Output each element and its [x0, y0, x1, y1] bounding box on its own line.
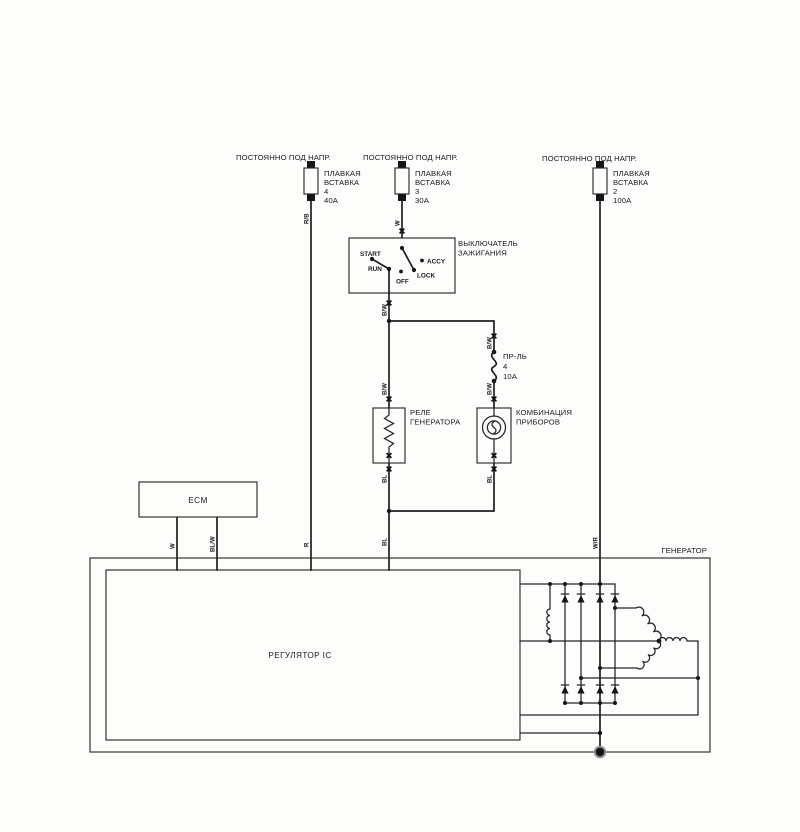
ignition-switch: ВЫКЛЮЧАТЕЛЬ ЗАЖИГАНИЯ START RUN OFF ACCY… [349, 238, 518, 293]
junction-dot [563, 582, 567, 586]
junction-dot [598, 666, 602, 670]
wire-label-w: W [395, 220, 401, 226]
ecm-module: ECM [139, 482, 257, 517]
generator-relay: РЕЛЕ ГЕНЕРАТОРА [373, 408, 461, 463]
wire-label-rb: R/B [305, 213, 311, 224]
diode-icon [577, 595, 584, 603]
diode-icon [596, 686, 603, 694]
fuse-body-icon [593, 168, 607, 194]
switch-pos-off: OFF [396, 279, 409, 286]
wire-label-bw: B/W [487, 337, 493, 349]
stator-phase-a-icon [615, 607, 661, 640]
wire-label-bl: BL [487, 475, 493, 483]
contact-dot-run [387, 267, 391, 271]
fuse-body-icon [395, 168, 409, 194]
fuse-rating: 40А [324, 196, 339, 205]
junction-dot [579, 676, 583, 680]
generator-box [90, 558, 710, 752]
fuse-rating: 30А [415, 196, 430, 205]
junction-dot [613, 701, 617, 705]
power-label-2: ПОСТОЯННО ПОД НАПР. [363, 153, 458, 162]
diode-icon [596, 595, 603, 603]
junction-dot [579, 701, 583, 705]
generator-label: ГЕНЕРАТОР [661, 546, 707, 555]
switch-pos-run: RUN [368, 266, 382, 273]
fuse-body-icon [304, 168, 318, 194]
contact-dot [400, 246, 404, 250]
fuse-cap-icon [596, 194, 604, 201]
diode-icon [611, 686, 618, 694]
fuse-number: 3 [415, 187, 419, 196]
wire-label-bl: BL [382, 475, 388, 483]
wire-label-r: R [305, 542, 311, 547]
inline-fuse-name: ПР-ЛЬ [503, 352, 527, 361]
wire-label-bw: B/W [487, 383, 493, 395]
cluster-label: ПРИБОРОВ [516, 418, 560, 427]
fuse-number: 2 [613, 187, 617, 196]
switch-pos-accy: ACCY [427, 259, 446, 266]
power-supply-labels: ПОСТОЯННО ПОД НАПР. ПОСТОЯННО ПОД НАПР. … [236, 153, 637, 163]
charging-system-schematic: ПОСТОЯННО ПОД НАПР. ПОСТОЯННО ПОД НАПР. … [0, 0, 800, 832]
stator-phase-c-icon [600, 641, 661, 669]
power-label-3: ПОСТОЯННО ПОД НАПР. [542, 154, 637, 163]
diode-icon [561, 686, 568, 694]
fuse-rating: 100А [613, 196, 632, 205]
wire-label-wr: W/R [593, 536, 599, 549]
diode-icon [561, 595, 568, 603]
generator-assembly: ГЕНЕРАТОР РЕГУЛЯТОР IC [90, 546, 710, 758]
inline-fuse: ПР-ЛЬ 4 10А [492, 350, 527, 384]
junction-dot [598, 701, 602, 705]
relay-label: РЕЛЕ [410, 408, 431, 417]
wire-label-bw: B/W [382, 383, 388, 395]
wiring-diagram-page: ПОСТОЯННО ПОД НАПР. ПОСТОЯННО ПОД НАПР. … [0, 0, 800, 832]
wire-label-bw: B/W [382, 304, 388, 316]
wire-bl-lamp [389, 463, 494, 511]
inline-fuse-number: 4 [503, 362, 508, 371]
wire-label-blw: BL/W [210, 536, 216, 552]
ignition-switch-label: ВЫКЛЮЧАТЕЛЬ [458, 239, 518, 248]
junction-dot [387, 319, 391, 323]
junction-dot [598, 731, 602, 735]
power-label-1: ПОСТОЯННО ПОД НАПР. [236, 153, 331, 162]
fuse-cap-icon [307, 194, 315, 201]
fuse-name: ВСТАВКА [613, 178, 649, 187]
wire-label-w: W [170, 543, 176, 549]
cluster-label: КОМБИНАЦИЯ [516, 408, 572, 417]
fuse-name: ВСТАВКА [324, 178, 360, 187]
ground-dot [596, 748, 604, 756]
diode-icons-top [561, 594, 618, 603]
fuse-cap-icon [307, 161, 315, 168]
diode-icon [611, 595, 618, 603]
diode-icons-bottom [561, 685, 618, 694]
switch-pos-start: START [360, 251, 381, 258]
ecm-label: ECM [188, 496, 207, 505]
fusible-link-40a: ПЛАВКАЯ ВСТАВКА 4 40А [304, 161, 361, 205]
fuse-name: ПЛАВКАЯ [324, 169, 361, 178]
junction-dot [387, 509, 391, 513]
fuse-name: ПЛАВКАЯ [415, 169, 452, 178]
fuse-name: ПЛАВКАЯ [613, 169, 650, 178]
fuse-name: ВСТАВКА [415, 178, 451, 187]
ignition-switch-label: ЗАЖИГАНИЯ [458, 249, 507, 258]
regulator-label: РЕГУЛЯТОР IC [268, 651, 331, 660]
fuse-cap-icon [398, 161, 406, 168]
fuse-element-icon [492, 352, 497, 381]
relay-label: ГЕНЕРАТОРА [410, 418, 461, 427]
junction-dot [579, 582, 583, 586]
fuse-number: 4 [324, 187, 329, 196]
fusible-link-100a: ПЛАВКАЯ ВСТАВКА 2 100А [593, 161, 650, 205]
inline-fuse-rating: 10А [503, 372, 518, 381]
contact-dot-lock [412, 268, 416, 272]
contact-dot-accy [420, 259, 424, 263]
fusible-link-30a: ПЛАВКАЯ ВСТАВКА 3 30А [395, 161, 452, 205]
switch-pos-lock: LOCK [417, 273, 435, 280]
field-winding-icon [547, 584, 550, 641]
contact-dot-off [399, 270, 403, 274]
junction-dot [696, 676, 700, 680]
instrument-cluster: КОМБИНАЦИЯ ПРИБОРОВ [477, 408, 572, 463]
wire-bw-branch [389, 321, 494, 352]
fuse-cap-icon [596, 161, 604, 168]
diode-icon [577, 686, 584, 694]
junction-dot [598, 582, 602, 586]
junction-dot [548, 639, 552, 643]
wire-label-bl: BL [382, 538, 388, 546]
fuse-cap-icon [398, 194, 406, 201]
junction-dot [563, 701, 567, 705]
